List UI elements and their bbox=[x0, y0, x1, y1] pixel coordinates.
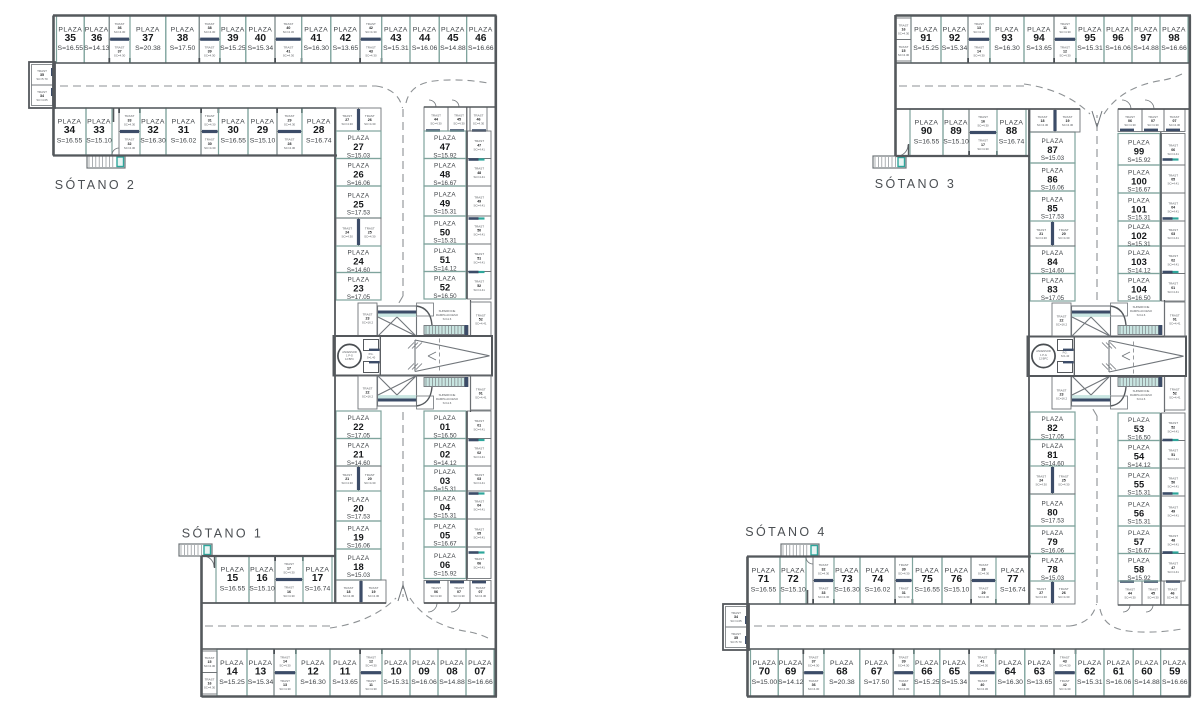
svg-text:S=15.10: S=15.10 bbox=[944, 587, 970, 594]
svg-text:SC=4.30: SC=4.30 bbox=[898, 687, 910, 691]
svg-text:SC=4.41: SC=4.41 bbox=[474, 204, 486, 208]
svg-text:SC=4.30: SC=4.30 bbox=[898, 595, 910, 599]
svg-text:SC=16.2: SC=16.2 bbox=[1056, 323, 1068, 327]
svg-text:SC=4.30: SC=4.30 bbox=[1169, 123, 1181, 127]
svg-text:SC=4.41: SC=4.41 bbox=[474, 427, 486, 431]
svg-text:S=17.53: S=17.53 bbox=[347, 514, 371, 521]
svg-text:SC=4.30: SC=4.30 bbox=[978, 595, 990, 599]
svg-text:SC=4.30: SC=4.30 bbox=[978, 571, 990, 575]
svg-text:44: 44 bbox=[419, 33, 431, 44]
svg-text:SC=4.41: SC=4.41 bbox=[1168, 514, 1180, 518]
svg-text:22: 22 bbox=[353, 421, 363, 432]
svg-text:S=16.66: S=16.66 bbox=[1161, 45, 1187, 52]
svg-text:S=16.06: S=16.06 bbox=[1041, 547, 1065, 554]
svg-text:42: 42 bbox=[340, 33, 352, 44]
svg-text:08: 08 bbox=[446, 666, 458, 677]
svg-text:56: 56 bbox=[1134, 507, 1144, 518]
svg-text:SC=4.41: SC=4.41 bbox=[1169, 396, 1181, 400]
svg-text:S=11.6: S=11.6 bbox=[443, 317, 452, 321]
svg-text:SC=4.41: SC=4.41 bbox=[474, 233, 486, 237]
svg-text:S=20.38: S=20.38 bbox=[829, 679, 855, 686]
svg-text:73: 73 bbox=[841, 574, 853, 585]
svg-text:SC=4.30: SC=4.30 bbox=[284, 146, 296, 150]
svg-text:S=14.12: S=14.12 bbox=[778, 679, 804, 686]
svg-text:09: 09 bbox=[418, 666, 430, 677]
svg-text:87: 87 bbox=[1047, 144, 1057, 155]
svg-text:92: 92 bbox=[949, 33, 961, 44]
svg-text:S=15.92: S=15.92 bbox=[433, 570, 457, 577]
svg-text:88: 88 bbox=[1006, 126, 1018, 137]
svg-text:96: 96 bbox=[1112, 33, 1124, 44]
svg-text:S=17.05: S=17.05 bbox=[1041, 433, 1065, 440]
svg-text:26: 26 bbox=[353, 169, 363, 180]
svg-text:S=16.06: S=16.06 bbox=[1106, 679, 1132, 686]
svg-text:S=13.65: S=13.65 bbox=[333, 45, 359, 52]
svg-text:97: 97 bbox=[1140, 33, 1152, 44]
svg-text:S=16.55: S=16.55 bbox=[914, 139, 940, 146]
svg-text:SC=4.30: SC=4.30 bbox=[808, 687, 820, 691]
svg-text:S=16.50: S=16.50 bbox=[433, 293, 457, 300]
svg-text:71: 71 bbox=[758, 574, 770, 585]
svg-text:S=16.74: S=16.74 bbox=[305, 586, 331, 593]
svg-text:S=16.55: S=16.55 bbox=[220, 138, 246, 145]
svg-text:S=15.10: S=15.10 bbox=[249, 586, 275, 593]
svg-text:12 BPC: 12 BPC bbox=[345, 357, 354, 361]
svg-text:38: 38 bbox=[177, 33, 189, 44]
svg-text:SC=16.2: SC=16.2 bbox=[362, 321, 374, 325]
svg-text:SC=4.30: SC=4.30 bbox=[1036, 595, 1048, 599]
svg-text:SC=4.41: SC=4.41 bbox=[474, 147, 486, 151]
svg-text:S=11.6: S=11.6 bbox=[1137, 397, 1146, 401]
svg-text:SC=4.41: SC=4.41 bbox=[474, 455, 486, 459]
svg-text:SC=4.30: SC=4.30 bbox=[343, 594, 355, 598]
svg-text:SC=4.30: SC=4.30 bbox=[204, 30, 216, 34]
svg-text:SC=4.30: SC=4.30 bbox=[1124, 123, 1136, 127]
svg-text:43: 43 bbox=[390, 33, 402, 44]
svg-text:66: 66 bbox=[921, 666, 933, 677]
svg-text:S=13.65: S=13.65 bbox=[1027, 679, 1053, 686]
svg-text:SC=4.30: SC=4.30 bbox=[430, 594, 442, 598]
svg-text:100: 100 bbox=[1131, 175, 1147, 186]
svg-text:S=1.40: S=1.40 bbox=[367, 355, 376, 359]
svg-text:ASCENSOR: ASCENSOR bbox=[1036, 349, 1051, 353]
svg-text:S=16.02: S=16.02 bbox=[865, 587, 891, 594]
svg-text:S=16.55: S=16.55 bbox=[57, 138, 83, 145]
svg-text:SC=4.30: SC=4.30 bbox=[898, 32, 910, 36]
svg-text:S=16.06: S=16.06 bbox=[411, 679, 437, 686]
svg-text:SC=4.30: SC=4.30 bbox=[204, 686, 216, 690]
svg-text:23: 23 bbox=[353, 283, 363, 294]
svg-text:S=16.02: S=16.02 bbox=[171, 138, 197, 145]
svg-text:SC=4.30: SC=4.30 bbox=[365, 54, 377, 58]
svg-text:S=16.06: S=16.06 bbox=[1105, 45, 1131, 52]
svg-text:S=16.55: S=16.55 bbox=[58, 45, 84, 52]
svg-text:63: 63 bbox=[1034, 666, 1046, 677]
svg-text:24: 24 bbox=[353, 256, 364, 267]
svg-text:SC=4.30: SC=4.30 bbox=[1059, 687, 1071, 691]
svg-text:S=14.60: S=14.60 bbox=[1041, 267, 1065, 274]
svg-text:SC=4.30: SC=4.30 bbox=[898, 571, 910, 575]
svg-text:SC=4.30: SC=4.30 bbox=[204, 664, 216, 668]
svg-text:41: 41 bbox=[311, 33, 323, 44]
svg-text:S=16.55: S=16.55 bbox=[914, 587, 940, 594]
svg-text:85: 85 bbox=[1047, 202, 1057, 213]
svg-text:S=15.34: S=15.34 bbox=[248, 679, 274, 686]
svg-text:SC=4.30: SC=4.30 bbox=[1058, 483, 1070, 487]
svg-text:SC=4.41: SC=4.41 bbox=[1168, 457, 1180, 461]
svg-text:69: 69 bbox=[785, 666, 797, 677]
svg-text:SC=4.30: SC=4.30 bbox=[204, 54, 216, 58]
svg-text:SC=4.30: SC=4.30 bbox=[124, 122, 136, 126]
svg-text:94: 94 bbox=[1033, 33, 1045, 44]
svg-text:SC=4.30: SC=4.30 bbox=[204, 122, 216, 126]
svg-text:S=15.10: S=15.10 bbox=[250, 138, 276, 145]
svg-text:55: 55 bbox=[1134, 478, 1144, 489]
svg-text:64: 64 bbox=[1005, 666, 1017, 677]
svg-text:SC=4.30: SC=4.30 bbox=[977, 687, 989, 691]
svg-text:SC=4.30: SC=4.30 bbox=[898, 664, 910, 668]
svg-text:S=15.31: S=15.31 bbox=[433, 486, 457, 493]
svg-text:102: 102 bbox=[1131, 230, 1147, 241]
svg-text:80: 80 bbox=[1047, 506, 1057, 517]
svg-text:S=16.30: S=16.30 bbox=[303, 45, 329, 52]
svg-text:SC=4.30: SC=4.30 bbox=[365, 664, 377, 668]
svg-text:SC=16.2: SC=16.2 bbox=[1056, 397, 1068, 401]
svg-text:S=16.30: S=16.30 bbox=[140, 138, 166, 145]
svg-text:06: 06 bbox=[440, 559, 450, 570]
svg-text:76: 76 bbox=[951, 574, 963, 585]
svg-text:S=14.13: S=14.13 bbox=[84, 45, 110, 52]
svg-text:S=15.92: S=15.92 bbox=[1127, 575, 1151, 582]
svg-text:14: 14 bbox=[226, 666, 238, 677]
svg-text:57: 57 bbox=[1134, 536, 1144, 547]
svg-text:S=15.31: S=15.31 bbox=[1127, 215, 1151, 222]
svg-text:45: 45 bbox=[447, 33, 459, 44]
svg-text:SC=4.30: SC=4.30 bbox=[475, 594, 487, 598]
svg-text:68: 68 bbox=[836, 666, 848, 677]
svg-text:S=15.31: S=15.31 bbox=[383, 45, 409, 52]
svg-text:SC=4.30: SC=4.30 bbox=[114, 54, 126, 58]
svg-text:S=15.10: S=15.10 bbox=[86, 138, 112, 145]
svg-text:SC=4.30: SC=4.30 bbox=[283, 54, 295, 58]
svg-text:11: 11 bbox=[340, 666, 351, 677]
svg-text:SC=4.30: SC=4.30 bbox=[365, 687, 377, 691]
svg-text:S=14.12: S=14.12 bbox=[1127, 267, 1151, 274]
svg-text:SC=4.41: SC=4.41 bbox=[474, 481, 486, 485]
svg-text:SC=4.30: SC=4.30 bbox=[1059, 54, 1071, 58]
svg-text:89: 89 bbox=[950, 126, 962, 137]
svg-text:SC=4.30: SC=4.30 bbox=[364, 122, 376, 126]
svg-text:SC=4.30: SC=4.30 bbox=[365, 30, 377, 34]
svg-text:07: 07 bbox=[474, 666, 486, 677]
svg-text:SC=4.41: SC=4.41 bbox=[1168, 542, 1180, 546]
svg-text:78: 78 bbox=[1047, 564, 1057, 575]
svg-text:SC=4.30: SC=4.30 bbox=[818, 571, 830, 575]
svg-text:S=17.05: S=17.05 bbox=[347, 294, 371, 301]
svg-text:62: 62 bbox=[1084, 666, 1096, 677]
svg-text:51: 51 bbox=[440, 254, 450, 265]
svg-text:SC=4.30: SC=4.30 bbox=[898, 53, 910, 57]
svg-text:S=16.74: S=16.74 bbox=[999, 139, 1025, 146]
svg-text:SC=4.05: SC=4.05 bbox=[730, 619, 742, 623]
svg-text:86: 86 bbox=[1047, 173, 1057, 184]
svg-text:S=15.03: S=15.03 bbox=[1041, 575, 1065, 582]
svg-text:SC=16.2: SC=16.2 bbox=[362, 395, 374, 399]
svg-text:SC=4.30: SC=4.30 bbox=[284, 122, 296, 126]
svg-text:S=15.34: S=15.34 bbox=[942, 45, 968, 52]
svg-text:04: 04 bbox=[440, 501, 451, 512]
svg-text:SC=4.05: SC=4.05 bbox=[36, 98, 48, 102]
svg-text:SC=4.30: SC=4.30 bbox=[808, 664, 820, 668]
svg-text:SC=4.30: SC=4.30 bbox=[342, 122, 354, 126]
svg-text:P.G.: P.G. bbox=[1063, 351, 1068, 355]
svg-text:75: 75 bbox=[922, 574, 934, 585]
svg-text:101: 101 bbox=[1131, 203, 1147, 214]
svg-text:S=15.31: S=15.31 bbox=[1127, 519, 1151, 526]
svg-text:54: 54 bbox=[1134, 451, 1145, 462]
svg-text:60: 60 bbox=[1141, 666, 1153, 677]
svg-text:S=17.53: S=17.53 bbox=[1041, 214, 1065, 221]
svg-text:S=17.05: S=17.05 bbox=[1041, 295, 1065, 302]
svg-text:S=15.25: S=15.25 bbox=[914, 679, 940, 686]
svg-text:ASCENSOR: ASCENSOR bbox=[342, 350, 357, 354]
svg-text:77: 77 bbox=[1007, 574, 1019, 585]
svg-text:SC=4.41: SC=4.41 bbox=[1168, 429, 1180, 433]
svg-text:05: 05 bbox=[440, 529, 450, 540]
svg-text:29: 29 bbox=[257, 125, 269, 136]
svg-text:SC=4.30: SC=4.30 bbox=[1058, 595, 1070, 599]
svg-text:93: 93 bbox=[1001, 33, 1013, 44]
svg-text:17: 17 bbox=[312, 573, 324, 584]
svg-text:SC=4.30: SC=4.30 bbox=[1062, 123, 1074, 127]
svg-text:SC=4.30: SC=4.30 bbox=[430, 122, 442, 126]
svg-text:S=17.53: S=17.53 bbox=[347, 210, 371, 217]
svg-text:SC=4.41: SC=4.41 bbox=[1168, 290, 1180, 294]
svg-text:SC=4.30: SC=4.30 bbox=[1147, 596, 1159, 600]
svg-text:S=15.92: S=15.92 bbox=[1127, 157, 1151, 164]
svg-text:SC=4.30: SC=4.30 bbox=[364, 481, 376, 485]
svg-text:S=16.74: S=16.74 bbox=[1000, 587, 1026, 594]
svg-text:S=16.66: S=16.66 bbox=[467, 679, 493, 686]
svg-text:103: 103 bbox=[1131, 256, 1147, 267]
svg-text:70: 70 bbox=[759, 666, 771, 677]
svg-text:21: 21 bbox=[353, 449, 363, 460]
svg-text:S=16.67: S=16.67 bbox=[1127, 547, 1151, 554]
svg-text:SC=4.41: SC=4.41 bbox=[474, 260, 486, 264]
svg-text:SC=4.30: SC=4.30 bbox=[453, 122, 465, 126]
svg-text:SC=4.41: SC=4.41 bbox=[475, 396, 487, 400]
svg-text:SÓTANO 3: SÓTANO 3 bbox=[875, 176, 956, 191]
svg-text:SC=4.30: SC=4.30 bbox=[279, 687, 291, 691]
svg-text:S=16.50: S=16.50 bbox=[1127, 295, 1151, 302]
svg-text:S=15.31: S=15.31 bbox=[1127, 490, 1151, 497]
svg-text:32: 32 bbox=[147, 125, 159, 136]
svg-text:SC=4.30: SC=4.30 bbox=[1036, 236, 1048, 240]
svg-text:16: 16 bbox=[256, 573, 268, 584]
svg-text:S=17.53: S=17.53 bbox=[1041, 518, 1065, 525]
svg-text:39: 39 bbox=[227, 33, 239, 44]
svg-text:SC=4.30: SC=4.30 bbox=[1037, 123, 1049, 127]
svg-text:S=16.66: S=16.66 bbox=[1162, 679, 1188, 686]
svg-text:47: 47 bbox=[440, 141, 450, 152]
svg-text:S=16.74: S=16.74 bbox=[306, 138, 332, 145]
svg-text:SC=4.30: SC=4.30 bbox=[977, 123, 989, 127]
svg-text:S=16.30: S=16.30 bbox=[997, 679, 1023, 686]
svg-text:SC=4.30: SC=4.30 bbox=[283, 594, 295, 598]
svg-text:34: 34 bbox=[64, 125, 76, 136]
svg-text:S=11.6: S=11.6 bbox=[443, 401, 452, 405]
svg-text:SC=4.30: SC=4.30 bbox=[279, 664, 291, 668]
svg-text:SC=4.30: SC=4.30 bbox=[818, 595, 830, 599]
svg-text:61: 61 bbox=[1113, 666, 1125, 677]
svg-text:52: 52 bbox=[440, 282, 450, 293]
svg-text:SC=4.41: SC=4.41 bbox=[1168, 182, 1180, 186]
svg-text:79: 79 bbox=[1047, 536, 1057, 547]
svg-text:95: 95 bbox=[1084, 33, 1096, 44]
svg-text:SC=4.30: SC=4.30 bbox=[204, 146, 216, 150]
svg-text:P.G.: P.G. bbox=[369, 352, 374, 356]
svg-text:SC=5.70: SC=5.70 bbox=[730, 640, 742, 644]
svg-text:13: 13 bbox=[255, 666, 267, 677]
svg-text:S=15.03: S=15.03 bbox=[347, 572, 371, 579]
svg-text:10: 10 bbox=[390, 666, 402, 677]
svg-text:SC=4.41: SC=4.41 bbox=[474, 565, 486, 569]
svg-text:SC=4.30: SC=4.30 bbox=[283, 570, 295, 574]
svg-text:01: 01 bbox=[440, 421, 450, 432]
svg-text:S=16.66: S=16.66 bbox=[468, 45, 494, 52]
svg-text:S=14.88: S=14.88 bbox=[1133, 45, 1159, 52]
svg-text:S=15.31: S=15.31 bbox=[1127, 241, 1151, 248]
svg-text:S=11.6: S=11.6 bbox=[1137, 313, 1146, 317]
svg-text:S=14.12: S=14.12 bbox=[1127, 462, 1151, 469]
svg-text:SC=4.41: SC=4.41 bbox=[1169, 322, 1181, 326]
svg-text:SC=4.41: SC=4.41 bbox=[474, 288, 486, 292]
svg-text:46: 46 bbox=[475, 33, 487, 44]
svg-text:S=15.25: S=15.25 bbox=[220, 45, 246, 52]
svg-text:S=1.40: S=1.40 bbox=[1061, 354, 1070, 358]
svg-text:S=14.88: S=14.88 bbox=[440, 45, 466, 52]
svg-text:67: 67 bbox=[871, 666, 883, 677]
svg-text:19: 19 bbox=[353, 531, 363, 542]
svg-text:72: 72 bbox=[787, 574, 799, 585]
svg-text:SC=4.30: SC=4.30 bbox=[114, 30, 126, 34]
svg-text:SÓTANO 4: SÓTANO 4 bbox=[745, 524, 826, 539]
svg-text:91: 91 bbox=[920, 33, 932, 44]
svg-text:S=15.00: S=15.00 bbox=[752, 679, 778, 686]
svg-text:83: 83 bbox=[1047, 284, 1057, 295]
svg-text:S=14.88: S=14.88 bbox=[439, 679, 465, 686]
svg-text:S=15.31: S=15.31 bbox=[1077, 679, 1103, 686]
svg-text:59: 59 bbox=[1169, 666, 1181, 677]
svg-text:SC=4.30: SC=4.30 bbox=[973, 54, 985, 58]
svg-text:84: 84 bbox=[1047, 256, 1058, 267]
svg-text:SC=4.41: SC=4.41 bbox=[1168, 152, 1180, 156]
svg-text:S=14.88: S=14.88 bbox=[1134, 679, 1160, 686]
svg-text:36: 36 bbox=[91, 33, 103, 44]
svg-text:SC=4.41: SC=4.41 bbox=[1168, 570, 1180, 574]
svg-text:S=13.65: S=13.65 bbox=[332, 679, 358, 686]
svg-text:53: 53 bbox=[1134, 423, 1144, 434]
svg-text:31: 31 bbox=[178, 125, 190, 136]
svg-text:99: 99 bbox=[1134, 146, 1144, 157]
svg-text:SC=4.30: SC=4.30 bbox=[283, 30, 295, 34]
svg-text:S=15.34: S=15.34 bbox=[248, 45, 274, 52]
svg-text:SC=4.30: SC=4.30 bbox=[368, 594, 380, 598]
svg-text:S=15.31: S=15.31 bbox=[433, 209, 457, 216]
svg-text:37: 37 bbox=[142, 33, 154, 44]
svg-text:SC=4.30: SC=4.30 bbox=[453, 594, 465, 598]
svg-text:SÓTANO 1: SÓTANO 1 bbox=[182, 526, 263, 541]
svg-text:15: 15 bbox=[227, 573, 239, 584]
svg-text:SC=4.30: SC=4.30 bbox=[473, 122, 485, 126]
svg-text:SC=4.30: SC=4.30 bbox=[1167, 596, 1179, 600]
svg-text:S=14.60: S=14.60 bbox=[1041, 460, 1065, 467]
svg-text:SC=4.30: SC=4.30 bbox=[1059, 664, 1071, 668]
svg-text:30: 30 bbox=[228, 125, 240, 136]
svg-text:1 P-G: 1 P-G bbox=[1040, 353, 1047, 357]
svg-text:S=16.06: S=16.06 bbox=[412, 45, 438, 52]
svg-text:SC=4.30: SC=4.30 bbox=[364, 235, 376, 239]
svg-text:SC=4.30: SC=4.30 bbox=[1036, 483, 1048, 487]
svg-text:SC=4.30: SC=4.30 bbox=[124, 146, 136, 150]
svg-text:12 BPC: 12 BPC bbox=[1039, 356, 1048, 360]
svg-text:S=16.30: S=16.30 bbox=[300, 679, 326, 686]
svg-text:S=13.65: S=13.65 bbox=[1026, 45, 1052, 52]
svg-text:65: 65 bbox=[949, 666, 961, 677]
svg-text:27: 27 bbox=[353, 141, 363, 152]
svg-text:SC=4.41: SC=4.41 bbox=[1168, 262, 1180, 266]
svg-text:S=15.34: S=15.34 bbox=[942, 679, 968, 686]
svg-text:33: 33 bbox=[93, 125, 105, 136]
svg-text:03: 03 bbox=[440, 475, 450, 486]
svg-text:74: 74 bbox=[872, 574, 884, 585]
svg-text:1 P-G: 1 P-G bbox=[346, 354, 353, 358]
svg-text:S=15.31: S=15.31 bbox=[383, 679, 409, 686]
svg-text:35: 35 bbox=[65, 33, 77, 44]
svg-text:SC=4.30: SC=4.30 bbox=[977, 664, 989, 668]
svg-text:20: 20 bbox=[353, 502, 363, 513]
svg-text:S=16.67: S=16.67 bbox=[1127, 187, 1151, 194]
svg-text:SC=4.30: SC=4.30 bbox=[977, 147, 989, 151]
svg-text:SC=4.41: SC=4.41 bbox=[1168, 210, 1180, 214]
svg-text:S=15.10: S=15.10 bbox=[780, 587, 806, 594]
svg-text:SC=4.30: SC=4.30 bbox=[342, 481, 354, 485]
svg-text:S=15.03: S=15.03 bbox=[1041, 155, 1065, 162]
svg-text:12: 12 bbox=[307, 666, 319, 677]
svg-text:48: 48 bbox=[440, 169, 450, 180]
svg-text:SC=5.70: SC=5.70 bbox=[36, 77, 48, 81]
svg-text:28: 28 bbox=[313, 125, 325, 136]
svg-text:50: 50 bbox=[440, 226, 450, 237]
svg-text:SC=4.30: SC=4.30 bbox=[1147, 123, 1159, 127]
svg-text:S=16.55: S=16.55 bbox=[220, 586, 246, 593]
svg-text:S=15.25: S=15.25 bbox=[913, 45, 939, 52]
svg-text:SC=4.41: SC=4.41 bbox=[474, 508, 486, 512]
svg-text:SC=4.41: SC=4.41 bbox=[475, 322, 487, 326]
svg-text:SC=4.41: SC=4.41 bbox=[1168, 485, 1180, 489]
svg-text:S=16.50: S=16.50 bbox=[1127, 434, 1151, 441]
svg-text:SÓTANO 2: SÓTANO 2 bbox=[55, 177, 136, 192]
svg-text:SC=4.41: SC=4.41 bbox=[1168, 236, 1180, 240]
svg-text:S=17.50: S=17.50 bbox=[864, 679, 890, 686]
svg-text:98: 98 bbox=[1168, 33, 1180, 44]
svg-text:81: 81 bbox=[1047, 449, 1057, 460]
svg-text:104: 104 bbox=[1131, 284, 1147, 295]
svg-text:S=20.38: S=20.38 bbox=[135, 45, 161, 52]
svg-text:S=17.50: S=17.50 bbox=[170, 45, 196, 52]
svg-text:S=16.55: S=16.55 bbox=[751, 587, 777, 594]
svg-text:49: 49 bbox=[440, 197, 450, 208]
